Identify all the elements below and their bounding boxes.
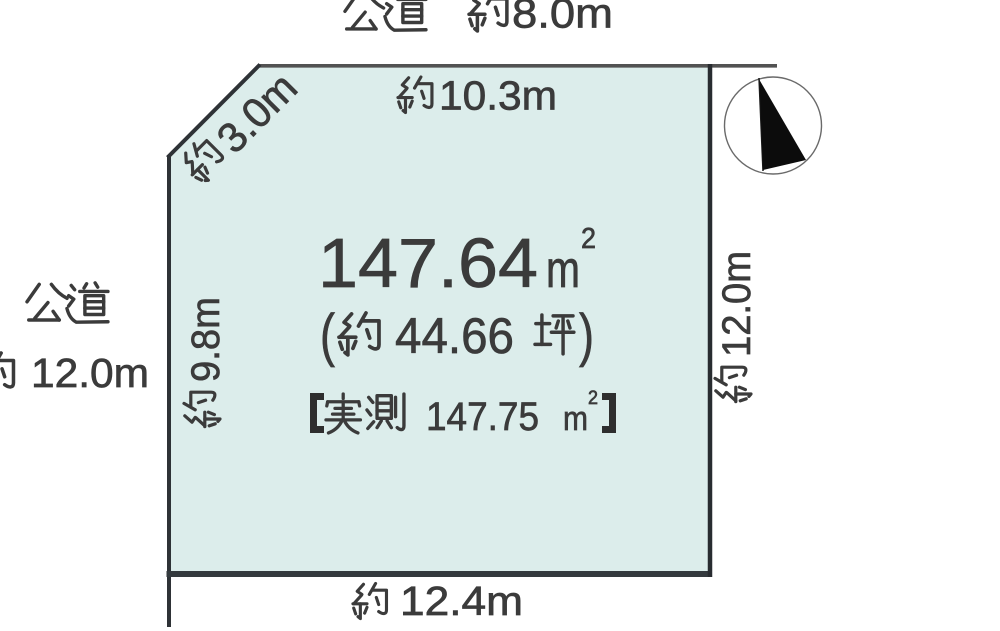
- svg-text:12.0m: 12.0m: [715, 251, 759, 357]
- svg-text:10.3m: 10.3m: [439, 73, 557, 119]
- svg-text:): ): [579, 303, 594, 368]
- svg-text:8.0m: 8.0m: [512, 0, 613, 37]
- svg-text:147.64: 147.64: [318, 224, 538, 302]
- svg-text:(: (: [320, 303, 335, 368]
- svg-text:2: 2: [581, 223, 596, 255]
- svg-text:9.8m: 9.8m: [184, 297, 228, 382]
- svg-text:12.4m: 12.4m: [400, 578, 523, 624]
- svg-text:2: 2: [588, 388, 598, 409]
- svg-text:m: m: [546, 241, 580, 299]
- svg-text:147.75: 147.75: [426, 395, 539, 439]
- svg-text:12.0m: 12.0m: [31, 350, 149, 396]
- svg-text:m: m: [563, 400, 588, 438]
- svg-text:44.66: 44.66: [395, 308, 514, 364]
